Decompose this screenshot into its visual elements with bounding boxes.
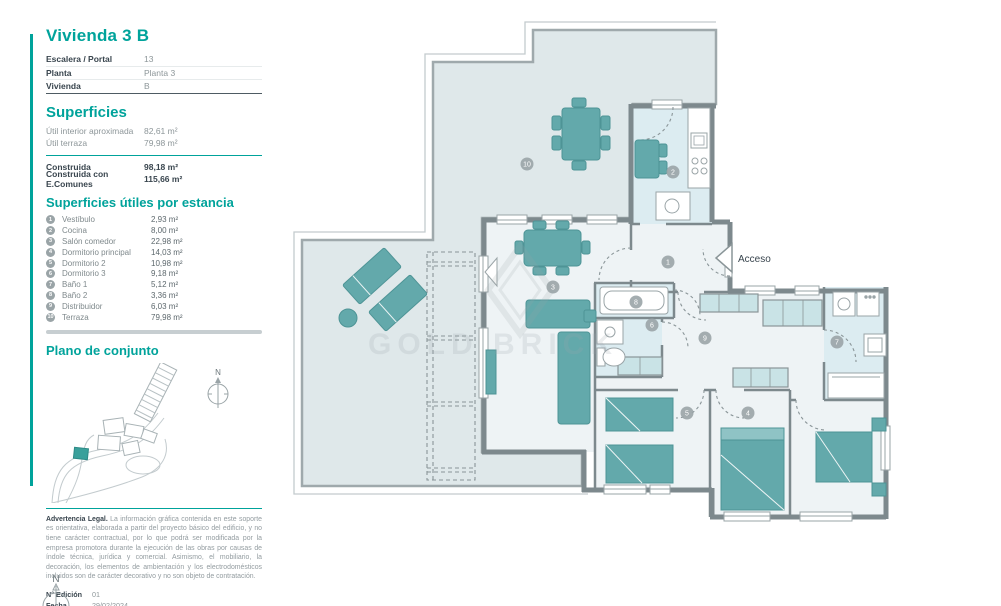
- estancia-row: 1Vestíbulo2,93 m²: [46, 215, 262, 226]
- room-marker-number: 6: [650, 323, 654, 330]
- superficie-row: Útil terraza79,98 m²: [46, 137, 262, 150]
- edition-value: 01: [92, 590, 100, 599]
- watermark-text: GOLD BRICK: [368, 328, 618, 361]
- room-marker-number: 4: [746, 411, 750, 418]
- divider: [46, 330, 262, 334]
- info-row-val: Planta 3: [144, 68, 175, 78]
- estancia-row-lbl: Dormitorio principal: [62, 248, 151, 257]
- divider: [46, 155, 262, 156]
- estancia-row-lbl: Cocina: [62, 226, 151, 235]
- superficie-row-lbl: Construida con E.Comunes: [46, 169, 144, 189]
- superficies-heading: Superficies: [46, 104, 262, 121]
- estancia-row-val: 8,00 m²: [151, 226, 178, 235]
- estancia-row-num: 7: [46, 280, 55, 289]
- info-row-lbl: Escalera / Portal: [46, 54, 144, 64]
- estancia-row: 2Cocina8,00 m²: [46, 225, 262, 236]
- estancia-row: 6Dormitorio 39,18 m²: [46, 268, 262, 279]
- svg-text:N: N: [215, 368, 221, 377]
- estancia-row-val: 79,98 m²: [151, 313, 183, 322]
- info-row: Escalera / Portal13: [46, 53, 262, 66]
- divider: [46, 508, 262, 509]
- room-marker-number: 10: [523, 162, 531, 169]
- info-row: ViviendaB: [46, 79, 262, 93]
- estancia-row-num: 8: [46, 291, 55, 300]
- room-marker-number: 5: [685, 411, 689, 418]
- estancia-row-val: 3,36 m²: [151, 291, 178, 300]
- estancia-row-lbl: Distribuidor: [62, 302, 151, 311]
- date-value: 29/02/2024: [92, 601, 128, 606]
- estancia-row-lbl: Baño 2: [62, 291, 151, 300]
- estancia-row-lbl: Dormitorio 2: [62, 259, 151, 268]
- sidebar: Vivienda 3 B Escalera / Portal13PlantaPl…: [30, 26, 262, 606]
- superficie-row-val: 79,98 m²: [144, 138, 178, 148]
- superficie-row: Construida con E.Comunes115,66 m²: [46, 173, 262, 186]
- estancia-row-val: 5,12 m²: [151, 280, 178, 289]
- estancia-row-lbl: Baño 1: [62, 280, 151, 289]
- estancia-row-lbl: Terraza: [62, 313, 151, 322]
- estancia-row-lbl: Vestíbulo: [62, 215, 151, 224]
- site-compass: N: [208, 368, 228, 408]
- highlighted-building: [73, 447, 88, 459]
- accent-bar: [30, 34, 33, 486]
- estancia-row-lbl: Dormitorio 3: [62, 269, 151, 278]
- estancia-row: 3Salón comedor22,98 m²: [46, 236, 262, 247]
- estancia-row: 8Baño 23,36 m²: [46, 290, 262, 301]
- superficies-construida-rows: Construida98,18 m²Construida con E.Comun…: [46, 161, 262, 186]
- bottom-compass: N: [36, 570, 88, 606]
- floorplan-sheet: Vivienda 3 B Escalera / Portal13PlantaPl…: [0, 0, 1001, 606]
- floor-plan: Acceso GOLD BRICK 10213869754: [285, 5, 905, 525]
- info-row-val: 13: [144, 54, 153, 64]
- room-marker-number: 3: [551, 285, 555, 292]
- plano-conjunto-heading: Plano de conjunto: [46, 343, 262, 358]
- info-row-val: B: [144, 81, 150, 91]
- room-marker-number: 1: [666, 260, 670, 267]
- unit-info-table: Escalera / Portal13PlantaPlanta 3Viviend…: [46, 53, 262, 94]
- superficie-row-val: 98,18 m²: [144, 162, 178, 172]
- estancia-row-val: 22,98 m²: [151, 237, 183, 246]
- estancias-list: 1Vestíbulo2,93 m²2Cocina8,00 m²3Salón co…: [46, 215, 262, 323]
- estancia-row: 7Baño 15,12 m²: [46, 279, 262, 290]
- info-row-lbl: Vivienda: [46, 81, 144, 91]
- estancia-row-num: 10: [46, 313, 55, 322]
- superficies-util-rows: Útil interior aproximada82,61 m²Útil ter…: [46, 125, 262, 150]
- estancia-row: 4Dormitorio principal14,03 m²: [46, 247, 262, 258]
- estancia-row-val: 2,93 m²: [151, 215, 178, 224]
- superficie-row-lbl: Útil interior aproximada: [46, 126, 144, 136]
- room-marker-number: 8: [634, 300, 638, 307]
- estancia-row-lbl: Salón comedor: [62, 237, 151, 246]
- room-marker-number: 7: [835, 340, 839, 347]
- room-marker-number: 2: [671, 170, 675, 177]
- superficie-row-val: 115,66 m²: [144, 174, 182, 184]
- superficie-row-lbl: Útil terraza: [46, 138, 144, 148]
- estancia-row-num: 4: [46, 248, 55, 257]
- estancia-row-val: 9,18 m²: [151, 269, 178, 278]
- acceso-label: Acceso: [738, 254, 771, 265]
- info-row: PlantaPlanta 3: [46, 66, 262, 80]
- legal-intro: Advertencia Legal.: [46, 516, 108, 523]
- superficie-row: Útil interior aproximada82,61 m²: [46, 125, 262, 138]
- site-plan: N: [46, 363, 260, 503]
- estancia-row: 10Terraza79,98 m²: [46, 312, 262, 323]
- estancia-row-val: 10,98 m²: [151, 259, 183, 268]
- estancia-row-num: 2: [46, 226, 55, 235]
- estancia-row-num: 9: [46, 302, 55, 311]
- estancia-row-num: 1: [46, 215, 55, 224]
- estancia-row-num: 5: [46, 259, 55, 268]
- estancia-row: 9Distribuidor6,03 m²: [46, 301, 262, 312]
- superficie-row-val: 82,61 m²: [144, 126, 178, 136]
- room-marker-number: 9: [703, 336, 707, 343]
- estancia-row-val: 6,03 m²: [151, 302, 178, 311]
- site-buildings: [98, 363, 177, 456]
- page-title: Vivienda 3 B: [46, 26, 262, 46]
- info-row-lbl: Planta: [46, 68, 144, 78]
- estancia-row-val: 14,03 m²: [151, 248, 183, 257]
- estancia-row: 5Dormitorio 210,98 m²: [46, 258, 262, 269]
- estancia-row-num: 3: [46, 237, 55, 246]
- estancias-heading: Superficies útiles por estancia: [46, 195, 262, 210]
- estancia-row-num: 6: [46, 269, 55, 278]
